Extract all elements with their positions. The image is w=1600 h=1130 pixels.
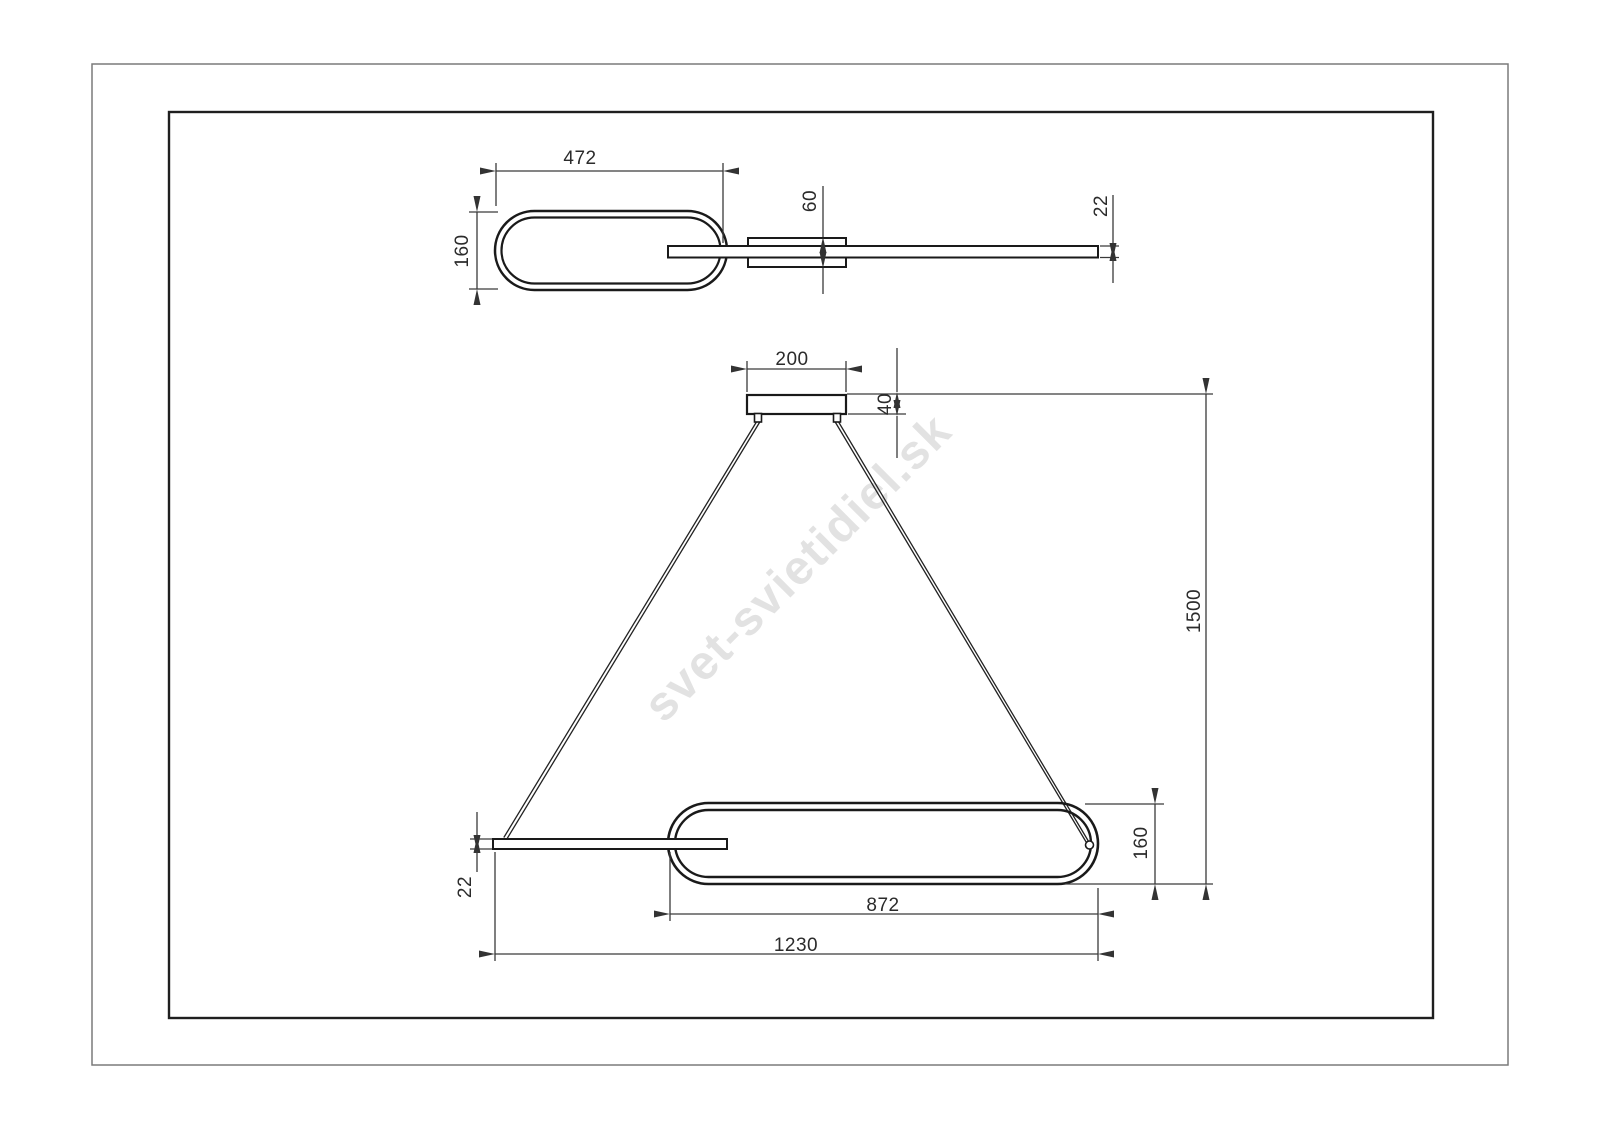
drawing-linework [0,0,1600,1130]
dim-label-ring-length: 872 [866,895,899,917]
cable-hook-left [755,414,762,423]
front-canopy [747,395,846,414]
dim-label-suspension-drop: 1500 [1184,589,1206,633]
dim-label-top-oval-length: 472 [563,148,596,170]
suspension-cable-left [504,422,760,839]
top-view [495,211,1098,290]
front-oval-inner [675,810,1091,877]
drawing-sheet: svet-svietidiel.sk [0,0,1600,1130]
cable-attachment-right [1086,841,1094,849]
dim-label-front-thickness: 22 [455,876,477,898]
dim-label-top-oval-width: 160 [452,234,474,267]
front-oval-outer [668,803,1098,884]
top-view-dimensions [469,163,1119,294]
outer-border [92,64,1508,1065]
front-profile-bar [493,839,727,849]
dim-label-canopy-width: 200 [775,349,808,371]
dim-label-overall-length: 1230 [774,935,818,957]
front-view-dimensions [470,348,1213,961]
front-view [493,395,1098,884]
dim-label-canopy-depth: 60 [800,190,822,212]
dim-label-ring-height: 160 [1131,826,1153,859]
top-profile-bar [668,246,1098,258]
suspension-cable-right [835,422,1090,844]
dim-label-top-thickness: 22 [1091,195,1113,217]
dim-label-canopy-height: 40 [875,393,897,415]
cable-hook-right [834,414,841,423]
